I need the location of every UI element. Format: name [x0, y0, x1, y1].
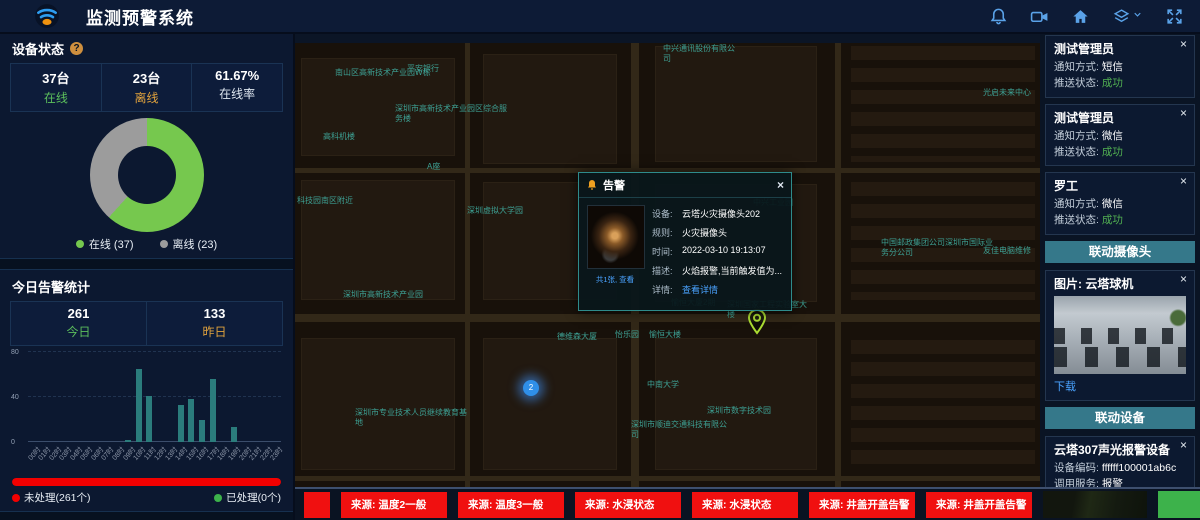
map-label: 平安银行: [407, 64, 439, 74]
popup-row: 规则:火灾摄像头: [652, 226, 783, 239]
bar-column: [112, 352, 123, 442]
linked-devices-banner[interactable]: 联动设备: [1045, 407, 1195, 429]
bell-icon[interactable]: [989, 7, 1008, 26]
device-status-donut-chart: [90, 118, 204, 232]
alert-snapshot-thumbnail[interactable]: [1043, 491, 1147, 518]
alarm-snapshot-image[interactable]: [587, 205, 645, 269]
map-label: 德维森大厦: [557, 332, 597, 342]
bar: [188, 399, 194, 442]
bar-column: [39, 352, 50, 442]
bar-column: [91, 352, 102, 442]
bar-column: [123, 352, 134, 442]
close-icon[interactable]: ×: [1180, 175, 1187, 187]
map-label: 中兴通讯股份有限公司: [663, 44, 735, 65]
unhandled-label: 未处理(261个): [24, 490, 91, 505]
popup-row: 详情:查看详情: [652, 283, 783, 296]
alert-green-thumbnail[interactable]: [1158, 491, 1200, 518]
close-icon[interactable]: ×: [1180, 107, 1187, 119]
y-tick: 40: [11, 394, 19, 401]
device-stat: 23台离线: [101, 64, 192, 111]
bar-column: [249, 352, 260, 442]
bar-column: [197, 352, 208, 442]
alarm-popup: 告警 × 共1张, 查看 设备:云塔火灾摄像头202规则:火灾摄像头时间:202…: [578, 172, 792, 311]
alert-chip-partial[interactable]: [304, 492, 330, 518]
bar: [199, 420, 205, 443]
chevron-down-icon: [1132, 7, 1143, 25]
map-label: 光启未来中心: [983, 88, 1031, 98]
map-label: 深圳市数字技术园: [707, 406, 771, 416]
right-panel: 测试管理员×通知方式: 短信推送状态: 成功测试管理员×通知方式: 微信推送状态…: [1040, 32, 1200, 487]
section-divider: [0, 258, 293, 270]
y-tick: 0: [11, 439, 15, 446]
alarm-bell-icon: [586, 179, 598, 191]
linked-cameras-banner[interactable]: 联动摄像头: [1045, 241, 1195, 263]
map-label: 深圳市高新技术产业园区综合服务楼: [395, 104, 507, 125]
monitoring-dashboard: 监测预警系统 设备状态 ? 37台在线23台离线61.67%在线率 在线 (37…: [0, 0, 1200, 520]
close-icon[interactable]: ×: [1180, 273, 1187, 285]
popup-row: 时间:2022-03-10 19:13:07: [652, 245, 783, 258]
alert-chip[interactable]: 来源: 水浸状态: [692, 492, 798, 518]
camera-card-title: 图片: 云塔球机: [1054, 275, 1186, 292]
today-alarm-bar-chart: 04080 00时01时02时03时04时05时06时07时08时09时10时1…: [0, 352, 293, 470]
y-tick: 80: [11, 349, 19, 356]
bar: [210, 379, 216, 442]
map-label: 科技园南区附近: [297, 196, 353, 206]
bar: [136, 369, 142, 442]
map-label: 中南大学: [647, 380, 679, 390]
map-label: 中国邮政集团公司深圳市国际业务分公司: [881, 238, 993, 259]
alert-chip[interactable]: 来源: 井盖开盖告警: [926, 492, 1032, 518]
map-label: 高科机楼: [323, 132, 355, 142]
device-stat: 37台在线: [11, 64, 101, 111]
bar-column: [239, 352, 250, 442]
fullscreen-icon[interactable]: [1165, 7, 1184, 26]
bar-column: [228, 352, 239, 442]
handled-dot-icon: [214, 494, 222, 502]
video-camera-icon[interactable]: [1030, 7, 1049, 26]
map-label: 怡乐园: [615, 330, 639, 340]
home-icon[interactable]: [1071, 7, 1090, 26]
bar-column: [133, 352, 144, 442]
x-tick: 23时: [271, 442, 282, 470]
bar-column: [49, 352, 60, 442]
section-divider: [0, 511, 293, 520]
layers-icon[interactable]: [1112, 7, 1143, 26]
bar-column: [81, 352, 92, 442]
bar-column: [60, 352, 71, 442]
alert-chip[interactable]: 来源: 温度3一般: [458, 492, 564, 518]
map-label: 深圳虚拟大学园: [467, 206, 523, 216]
close-icon[interactable]: ×: [1180, 439, 1187, 451]
today-alarm-stats: 261今日133昨日: [10, 301, 283, 346]
alert-chip[interactable]: 来源: 温度2一般: [341, 492, 447, 518]
view-details-link[interactable]: 查看详情: [682, 283, 718, 296]
cluster-marker[interactable]: 2: [523, 380, 539, 396]
progress-legend: 未处理(261个) 已处理(0个): [12, 490, 281, 505]
alarm-popup-title: 告警: [603, 177, 625, 193]
bar-column: [28, 352, 39, 442]
notification-card: 测试管理员×通知方式: 微信推送状态: 成功: [1045, 104, 1195, 167]
bar-column: [165, 352, 176, 442]
device-card: 云塔307声光报警设备×设备编码: ffffff100001ab6c调用服务: …: [1045, 436, 1195, 487]
map-canvas[interactable]: 中兴通讯股份有限公司南山区高新技术产业园W栋平安银行光启未来中心深圳市高新技术产…: [295, 32, 1040, 487]
bar-column: [144, 352, 155, 442]
help-icon[interactable]: ?: [70, 42, 83, 55]
bar: [178, 405, 184, 442]
camera-image[interactable]: [1054, 296, 1186, 374]
location-pin-icon[interactable]: [745, 308, 769, 341]
device-status-stats: 37台在线23台离线61.67%在线率: [10, 63, 283, 112]
bar-column: [70, 352, 81, 442]
notification-card: 测试管理员×通知方式: 短信推送状态: 成功: [1045, 35, 1195, 98]
bar-column: [207, 352, 218, 442]
bar-column: [102, 352, 113, 442]
alarm-popup-header: 告警 ×: [579, 173, 791, 198]
device-status-header: 设备状态 ?: [0, 32, 293, 63]
bar-column: [260, 352, 271, 442]
bar-column: [186, 352, 197, 442]
today-alarm-header: 今日告警统计: [0, 270, 293, 301]
bar-column: [155, 352, 166, 442]
today-alarm-title: 今日告警统计: [12, 277, 90, 296]
notification-card: 罗工×通知方式: 微信推送状态: 成功: [1045, 172, 1195, 235]
popup-row: 描述:火焰报警,当前触发值为...: [652, 264, 783, 277]
snapshot-count-link[interactable]: 共1张, 查看: [587, 274, 643, 285]
device-stat: 61.67%在线率: [191, 64, 282, 111]
map-label: 深圳市专业技术人员继续教育基地: [355, 408, 467, 429]
legend-item: 在线 (37): [76, 236, 134, 252]
popup-row: 设备:云塔火灾摄像头202: [652, 207, 783, 220]
today-stat: 261今日: [11, 302, 146, 345]
map-label: 愉恒大楼: [649, 330, 681, 340]
alert-chip[interactable]: 来源: 井盖开盖告警: [809, 492, 915, 518]
handled-label: 已处理(0个): [226, 490, 281, 505]
close-icon[interactable]: ×: [1180, 38, 1187, 50]
legend-item: 离线 (23): [160, 236, 218, 252]
bar-column: [271, 352, 282, 442]
left-panel: 设备状态 ? 37台在线23台离线61.67%在线率 在线 (37)离线 (23…: [0, 32, 295, 520]
unhandled-progress-bar: [12, 478, 281, 486]
unhandled-dot-icon: [12, 494, 20, 502]
bar-column: [218, 352, 229, 442]
page-title: 监测预警系统: [86, 4, 194, 29]
map-label: 深圳市高新技术产业园: [343, 290, 427, 300]
alarm-popup-body: 共1张, 查看 设备:云塔火灾摄像头202规则:火灾摄像头时间:2022-03-…: [579, 198, 791, 310]
camera-card: 图片: 云塔球机 × 下载: [1045, 270, 1195, 401]
bottom-alert-bar: 来源: 温度2一般来源: 温度3一般来源: 水浸状态来源: 水浸状态来源: 井盖…: [295, 487, 1200, 520]
header-actions: [989, 7, 1184, 26]
bar: [231, 427, 237, 442]
top-header: 监测预警系统: [0, 0, 1200, 34]
bar: [146, 396, 152, 442]
alert-chip[interactable]: 来源: 水浸状态: [575, 492, 681, 518]
bar-column: [176, 352, 187, 442]
download-link[interactable]: 下载: [1054, 381, 1076, 393]
popup-close-icon[interactable]: ×: [777, 179, 784, 191]
app-logo-icon: [34, 3, 60, 29]
donut-legend: 在线 (37)离线 (23): [0, 236, 293, 252]
device-status-title: 设备状态: [12, 39, 64, 58]
map-label: 深圳市顺迪交通科技有限公司: [631, 420, 731, 441]
map-label: 友佳电脑维修: [983, 246, 1031, 256]
map-label: A座: [427, 162, 440, 172]
today-stat: 133昨日: [146, 302, 282, 345]
